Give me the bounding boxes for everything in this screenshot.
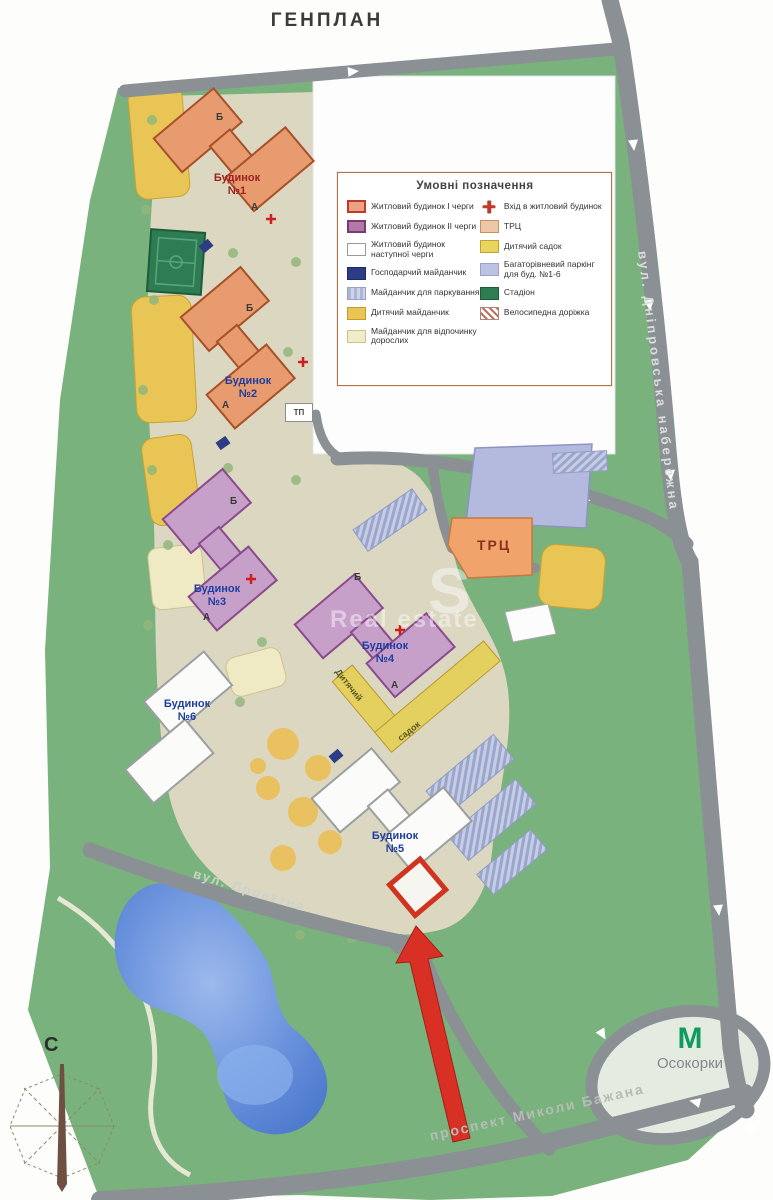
future-swatch-icon (347, 243, 366, 256)
substation-label: ТП (294, 408, 305, 417)
bike-path-swatch-icon (480, 307, 499, 320)
stadium (147, 229, 205, 295)
legend-item-label: ТРЦ (504, 222, 521, 232)
metro-station-name: Осокорки (630, 1055, 750, 1072)
building-1-label: Будинок №1 (202, 172, 272, 197)
legend-item-mall: ТРЦ (480, 220, 603, 233)
legend-item-playground: Дитячий майданчик (347, 307, 480, 320)
legend-item-label: Житловий будинок I черги (371, 202, 474, 212)
legend-item-future: Житловий будинок наступної черги (347, 240, 480, 260)
building-4-section-b: Б (354, 572, 361, 583)
page-title: ГЕНПЛАН (212, 10, 442, 32)
legend-item-label: Дитячий майданчик (371, 308, 449, 318)
building-3-label: Будинок №3 (182, 583, 252, 608)
legend-item-label: Житловий будинок II черги (371, 222, 476, 232)
building-1-section-b: Б (216, 112, 223, 123)
building-1-section-a: А (251, 202, 258, 213)
phase2-swatch-icon (347, 220, 366, 233)
legend-item-label: Житловий будинок наступної черги (371, 240, 480, 260)
parking-swatch-icon (347, 287, 366, 300)
building-2-section-b: Б (246, 303, 253, 314)
building-2-section-a: А (222, 400, 229, 411)
legend-right-column: Вхід в житловий будинок ТРЦ Дитячий садо… (480, 200, 603, 353)
building-5-label: Будинок №5 (360, 830, 430, 855)
garage-swatch-icon (480, 263, 499, 276)
playground-swatch-icon (347, 307, 366, 320)
entrance-cross-icon (483, 200, 496, 213)
legend-item-label: Господарчий майданчик (371, 268, 466, 278)
legend-item-parking: Майданчик для паркування (347, 287, 480, 300)
legend-item-garage: Багаторівневий паркінг для буд. №1-6 (480, 260, 603, 280)
legend-item-label: Майданчик для паркування (371, 288, 479, 298)
watermark-text: Real estate (330, 606, 479, 634)
legend-item-phase2: Житловий будинок II черги (347, 220, 480, 233)
legend-item-entrance: Вхід в житловий будинок (480, 200, 603, 213)
genplan-page: ГЕНПЛАН Умовні позначення Житловий будин… (0, 0, 773, 1200)
legend-item-label: Велосипедна доріжка (504, 308, 589, 318)
rest-area-swatch-icon (347, 330, 366, 343)
building-3-section-a: А (203, 612, 210, 623)
building-2-label: Будинок №2 (213, 375, 283, 400)
legend-item-kindergarten: Дитячий садок (480, 240, 603, 253)
legend-item-utility: Господарчий майданчик (347, 267, 480, 280)
legend-item-label: Дитячий садок (504, 242, 562, 252)
legend-title: Умовні позначення (347, 180, 603, 192)
legend-item-phase1: Житловий будинок I черги (347, 200, 480, 213)
legend-panel: Умовні позначення Житловий будинок I чер… (337, 172, 612, 386)
phase1-swatch-icon (347, 200, 366, 213)
substation-box: ТП (285, 403, 313, 422)
mall-label: ТРЦ (462, 537, 526, 553)
legend-item-stadium: Стадіон (480, 287, 603, 300)
legend-item-label: Стадіон (504, 288, 535, 298)
building-3-section-b: Б (230, 496, 237, 507)
legend-item-label: Багаторівневий паркінг для буд. №1-6 (504, 260, 603, 280)
kindergarten-swatch-icon (480, 240, 499, 253)
building-6-label: Будинок №6 (152, 698, 222, 723)
legend-item-rest: Майданчик для відпочинку дорослих (347, 327, 480, 347)
stadium-swatch-icon (480, 287, 499, 300)
building-4-label: Будинок №4 (350, 640, 420, 665)
pond-highlight (217, 1045, 293, 1105)
legend-item-label: Майданчик для відпочинку дорослих (371, 327, 480, 347)
legend-left-column: Житловий будинок I черги Житловий будино… (347, 200, 480, 353)
legend-item-bike: Велосипедна доріжка (480, 307, 603, 320)
utility-swatch-icon (347, 267, 366, 280)
legend-item-label: Вхід в житловий будинок (504, 202, 602, 212)
compass-north-label: С (44, 1034, 58, 1057)
building-4-section-a: А (391, 680, 398, 691)
metro-station: М Осокорки (630, 1024, 750, 1072)
mall-swatch-icon (480, 220, 499, 233)
metro-icon: М (630, 1024, 750, 1054)
